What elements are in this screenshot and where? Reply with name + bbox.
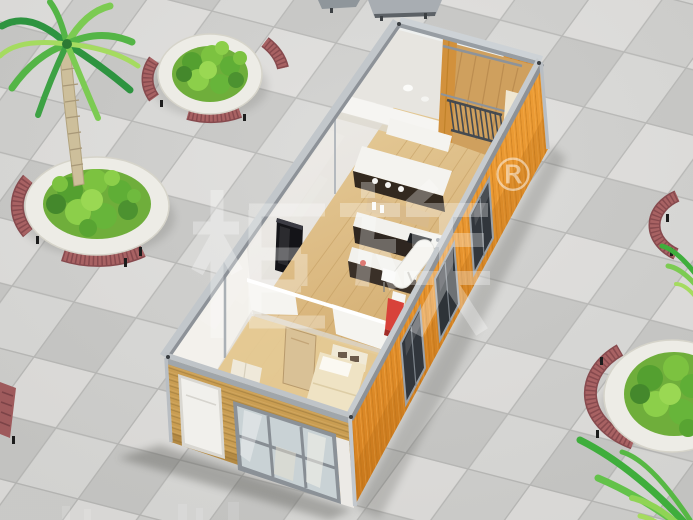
registered-mark: ® — [490, 148, 536, 202]
bedroom-door — [283, 327, 316, 392]
watermark-char-1 — [193, 190, 325, 338]
toilet — [403, 85, 413, 92]
scene-svg: ® — [0, 0, 693, 520]
render-canvas: 柜族 — [0, 0, 693, 520]
sink — [421, 96, 429, 101]
